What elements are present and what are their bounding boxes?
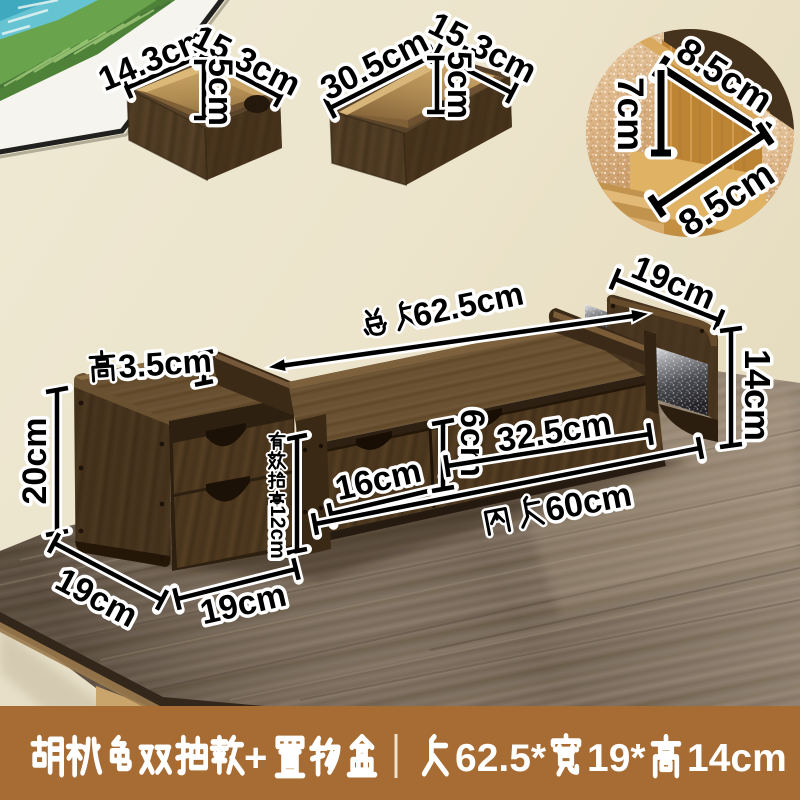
svg-text:14cm: 14cm	[737, 349, 778, 441]
svg-text:62.5*: 62.5*	[455, 737, 547, 780]
svg-text:3.5cm: 3.5cm	[117, 342, 213, 385]
svg-text:12cm: 12cm	[266, 505, 289, 559]
svg-text:+: +	[244, 736, 267, 780]
svg-text:5cm: 5cm	[201, 58, 239, 126]
svg-text:5cm: 5cm	[440, 51, 478, 119]
svg-text:19*: 19*	[587, 737, 646, 780]
svg-text:14cm: 14cm	[687, 737, 787, 780]
svg-text:7cm: 7cm	[610, 77, 651, 151]
svg-text:20cm: 20cm	[16, 418, 54, 505]
